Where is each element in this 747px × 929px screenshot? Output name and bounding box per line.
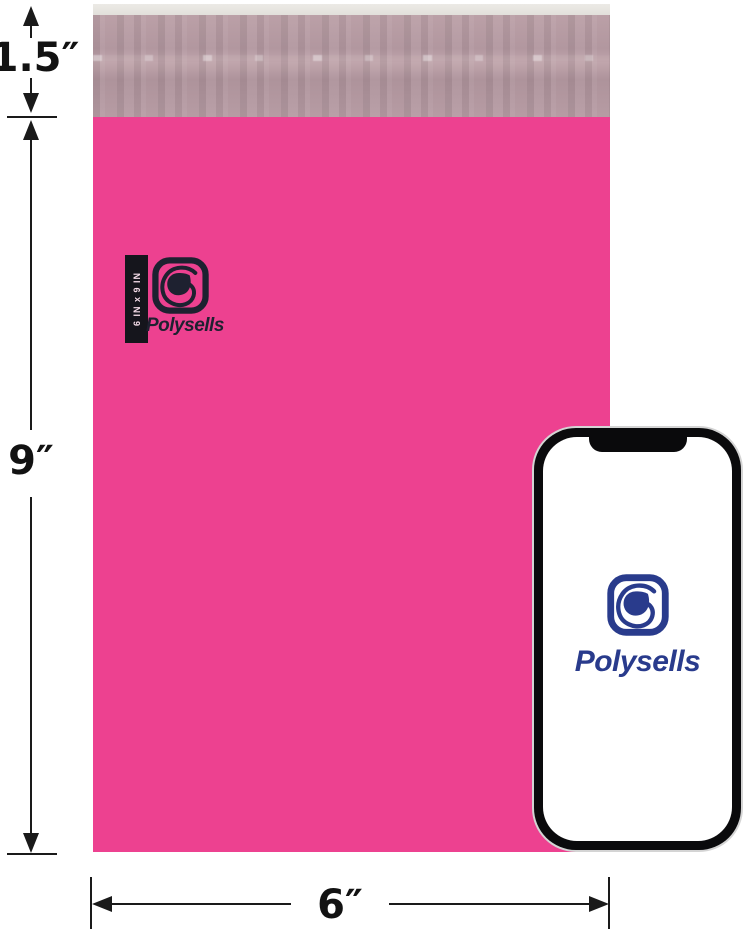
dim-line — [30, 78, 32, 94]
bag-flap — [93, 15, 610, 121]
smartphone: Polysells — [534, 428, 741, 850]
flap-height-label: 1.5″ — [0, 38, 79, 78]
arrow-down-icon — [23, 93, 39, 113]
dim-line — [30, 139, 32, 430]
dim-tick — [7, 116, 57, 118]
mailer-bag: 6 IN x 9 IN Polysells — [93, 4, 610, 852]
dim-line — [389, 903, 591, 905]
adhesive-strip — [93, 55, 610, 61]
phone-notch — [589, 437, 687, 452]
arrow-up-icon — [23, 6, 39, 26]
arrow-up-icon — [23, 120, 39, 140]
arrow-right-icon — [589, 896, 609, 912]
phone-screen: Polysells — [543, 437, 732, 841]
arrow-left-icon — [92, 896, 112, 912]
polysells-wordmark: Polysells — [146, 315, 266, 337]
size-tag-label: 6 IN x 9 IN — [132, 272, 142, 326]
bag-width-label: 6″ — [317, 885, 363, 925]
size-tag: 6 IN x 9 IN — [125, 255, 148, 343]
bag-flap-top-edge — [93, 4, 610, 15]
dim-line — [111, 903, 291, 905]
bag-body: 6 IN x 9 IN Polysells — [93, 117, 610, 852]
product-dimension-image: 6 IN x 9 IN Polysells 1.5″ 9″ 6″ — [0, 0, 747, 929]
dim-tick — [7, 853, 57, 855]
polysells-wordmark: Polysells — [575, 645, 701, 679]
arrow-down-icon — [23, 833, 39, 853]
polysells-logo-icon — [152, 257, 209, 314]
polysells-logo-icon — [606, 574, 670, 636]
phone-brand-block: Polysells — [543, 574, 732, 679]
dim-line — [30, 497, 32, 834]
bag-height-label: 9″ — [8, 441, 54, 481]
